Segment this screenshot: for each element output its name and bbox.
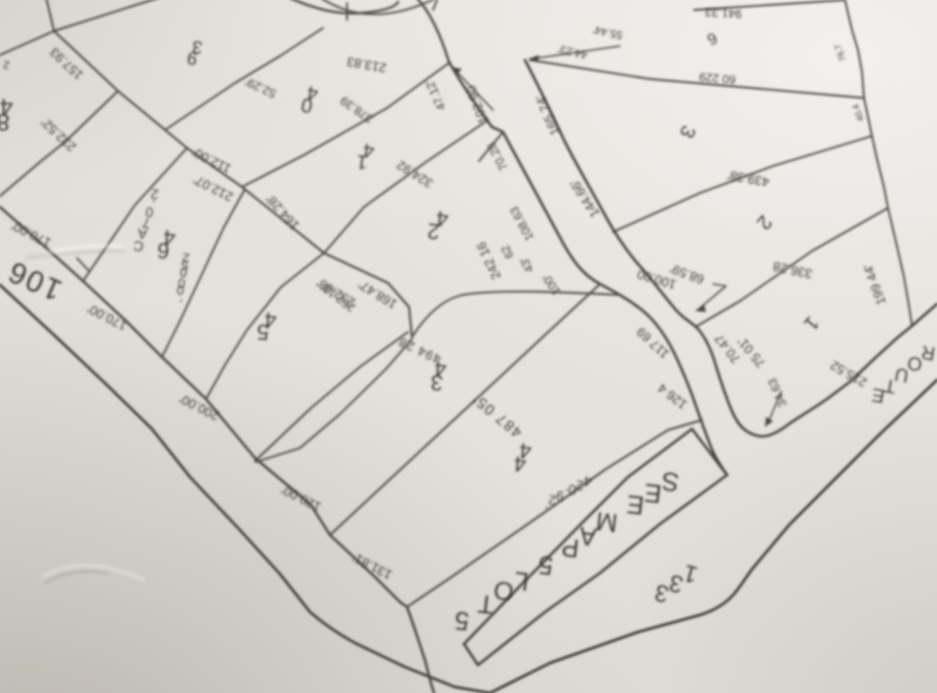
svg-text:439.38': 439.38' (726, 168, 770, 190)
svg-text:55.44': 55.44' (592, 23, 623, 41)
svg-text:378.39: 378.39 (337, 93, 375, 126)
svg-text:3: 3 (675, 122, 700, 141)
svg-text:43': 43' (517, 255, 537, 275)
svg-text:39: 39 (178, 33, 209, 72)
svg-text:34.63: 34.63 (765, 376, 790, 409)
svg-text:42: 42 (413, 199, 460, 250)
svg-text:47.12': 47.12' (422, 77, 448, 112)
svg-text:133: 133 (638, 551, 710, 614)
svg-text:200.00': 200.00' (177, 391, 221, 424)
svg-text:102.90: 102.90 (463, 84, 491, 126)
svg-text:SEE MAP 5 LOT 5: SEE MAP 5 LOT 5 (434, 454, 693, 644)
svg-text:40: 40 (292, 78, 325, 120)
svg-text:52.29': 52.29' (243, 75, 278, 101)
svg-text:117 69: 117 69 (633, 324, 672, 361)
svg-text:336.28: 336.28 (772, 259, 814, 282)
svg-text:46: 46 (146, 220, 184, 268)
svg-text:420.92': 420.92' (536, 470, 598, 515)
svg-text:44.23': 44.23' (557, 42, 589, 60)
svg-text:108.63: 108.63 (507, 204, 537, 243)
svg-text:76.7: 76.7 (832, 43, 847, 63)
svg-text:487 05': 487 05' (469, 390, 525, 441)
svg-text:41: 41 (346, 134, 383, 177)
svg-text:131.81': 131.81' (350, 550, 394, 583)
svg-text:199 44': 199 44' (860, 262, 889, 307)
svg-text:ROUTE: ROUTE (858, 333, 937, 413)
svg-text:60 229: 60 229 (698, 70, 736, 87)
svg-text:165.74': 165.74' (532, 93, 562, 138)
svg-text:112.00': 112.00' (190, 145, 234, 177)
svg-text:324.92: 324.92 (394, 157, 436, 191)
svg-text:250.00': 250.00' (174, 250, 192, 306)
svg-text:44: 44 (504, 434, 539, 481)
svg-text:100': 100' (540, 272, 564, 298)
svg-text:62: 62 (498, 243, 517, 262)
svg-text:494 28: 494 28 (395, 334, 443, 367)
svg-text:106: 106 (2, 254, 67, 307)
svg-text:48: 48 (0, 90, 18, 138)
svg-text:2: 2 (2, 58, 10, 71)
svg-text:70.28: 70.28 (484, 140, 511, 173)
svg-text:170.00': 170.00' (85, 301, 129, 334)
svg-text:170.00': 170.00' (9, 218, 53, 251)
svg-text:1: 1 (799, 312, 823, 335)
svg-text:164.28': 164.28' (263, 192, 302, 233)
svg-text:120.00': 120.00' (279, 482, 323, 515)
svg-text:215.52: 215.52 (828, 358, 870, 391)
svg-text:126 4: 126 4 (655, 381, 690, 413)
svg-text:213.83: 213.83 (346, 54, 388, 76)
svg-text:168.47': 168.47' (356, 277, 400, 312)
svg-text:40.4: 40.4 (850, 103, 865, 123)
svg-text:2: 2 (752, 211, 776, 234)
svg-text:941.33: 941.33 (704, 5, 742, 21)
svg-text:242 16: 242 16 (473, 240, 503, 282)
svg-text:6: 6 (704, 28, 719, 47)
svg-text:157.93: 157.93 (47, 45, 86, 83)
